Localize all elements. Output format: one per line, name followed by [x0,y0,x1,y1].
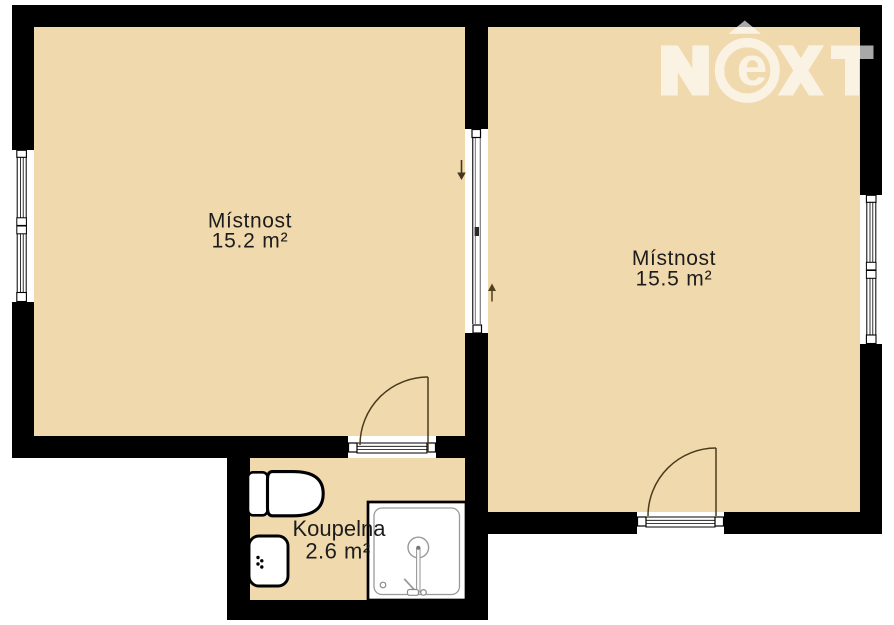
svg-text:Koupelna: Koupelna [293,516,387,541]
svg-text:15.2 m²: 15.2 m² [212,230,289,253]
svg-text:15.5 m²: 15.5 m² [636,268,713,291]
svg-text:e: e [737,35,768,97]
svg-text:2.6 m²: 2.6 m² [305,539,370,564]
